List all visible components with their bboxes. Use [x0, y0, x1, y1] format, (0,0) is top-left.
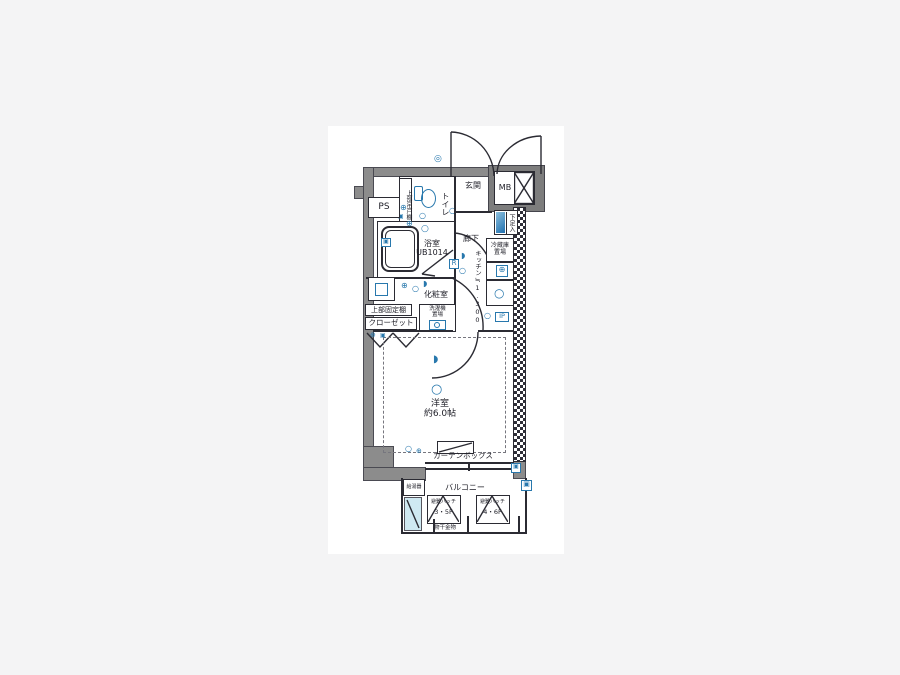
room-ceiling-dashed-outline: [383, 337, 506, 453]
downlight-icon: ◗: [461, 252, 465, 260]
ceiling-light-icon: ○: [412, 285, 419, 293]
ceiling-light-icon: ○: [419, 212, 426, 220]
balcony-label: バルコニー: [441, 483, 489, 492]
powder-room-label: 化粧室: [418, 290, 454, 299]
hatch-front-name: 避難ハッチ: [428, 500, 459, 506]
main-room-label: 洋室 約6.0帖: [405, 399, 475, 420]
sensor-light-icon: ◎: [434, 155, 442, 164]
entrance-door-arc-icon: [448, 131, 495, 177]
water-heater-label: 給湯器: [404, 485, 424, 491]
pipe-space-label: PS: [369, 202, 399, 212]
vent-icon: ▣: [380, 333, 386, 339]
kitchen-counter-lower: ○: [486, 280, 514, 306]
fridge-space-label: 冷蔵庫 置場: [487, 243, 513, 257]
kitchen-stove-icon: ⊕: [496, 265, 508, 277]
closet-label: クローゼット: [366, 319, 416, 328]
room-top-line-right: [478, 330, 514, 332]
partition-diagonal-icon: [405, 498, 421, 530]
meter-door-arc-icon: [496, 135, 543, 175]
ceiling-light-icon: ○: [484, 312, 491, 320]
outlet-icon: ⊕: [416, 448, 422, 455]
downlight-icon: ◗: [433, 355, 438, 365]
water-heater: 給湯器: [403, 479, 425, 496]
meter-box: MB: [494, 171, 535, 205]
shoe-cabinet-label: 下足入: [506, 212, 514, 234]
ip-box-icon: IP: [495, 312, 509, 322]
kitchen-sink-icon: ○: [494, 287, 504, 299]
entrance-label: 玄関: [457, 181, 489, 190]
bath-vent-icon: ▣: [381, 238, 391, 247]
wall-hatched-right: [513, 207, 526, 462]
washing-machine-icon: [429, 320, 446, 330]
ceiling-light-icon: ○: [431, 383, 442, 396]
washbasin-icon: [368, 277, 395, 301]
shoe-cabinet-icon: [496, 212, 505, 233]
pipe-space-box: PS: [368, 197, 400, 218]
washer-space: 洗濯機 置場: [419, 304, 456, 332]
toilet-label: トイレ: [441, 183, 449, 225]
washing-machine-drum-icon: [434, 322, 440, 328]
outlet-icon: ⊕: [401, 282, 408, 290]
ceiling-light-icon: ○: [459, 267, 466, 275]
balcony-partition-icon: [404, 497, 422, 531]
closet: クローゼット: [365, 317, 417, 330]
r-box-icon: R: [449, 259, 459, 269]
evacuation-hatch-rear: 避難ハッチ 4・6F: [476, 495, 510, 524]
shoe-cabinet: 下足入: [494, 210, 518, 235]
floorplan-image: MB 上部吊戸棚 トイレ ⊕ ▣ ○ 玄関 ◎ ○ PS ▣ 浴室 UB1014…: [0, 0, 900, 675]
ceiling-light-icon: ○: [405, 445, 412, 453]
wall-left-notch: [354, 186, 364, 199]
hatch-rear-floors: 4・6F: [477, 509, 508, 516]
closet-upper-shelf-label: 上部固定棚: [366, 306, 411, 314]
meter-box-x-icon: [514, 172, 534, 204]
closet-upper-shelf: 上部固定棚: [365, 304, 412, 316]
outlet-icon: ⊕: [406, 220, 413, 228]
balcony-tick: [467, 516, 469, 533]
balcony-tick: [518, 516, 520, 533]
downlight-icon: ◗: [423, 280, 427, 288]
kitchen-label: キッチン≒1.300: [474, 247, 481, 327]
outlet-icon: ⊕: [370, 332, 376, 339]
hatch-front-floors: 3・5F: [428, 509, 459, 516]
balcony-tick: [433, 519, 435, 533]
washbasin-bowl-icon: [375, 283, 388, 296]
curtain-box-label: カーテンボックス: [428, 452, 498, 461]
ceiling-light-icon: ○: [421, 225, 429, 234]
meter-box-label: MB: [496, 183, 514, 192]
toilet-bowl-icon: [421, 189, 436, 208]
washer-space-label: 洗濯機 置場: [420, 306, 455, 319]
outlet-icon: ⊕: [400, 204, 407, 212]
entrance-step-line: [456, 211, 492, 213]
window-shutter-icon: ▣: [511, 463, 521, 473]
balcony-light-icon: ▣: [521, 480, 532, 491]
hatch-rear-name: 避難ハッチ: [477, 500, 508, 506]
fridge-space: 冷蔵庫 置場: [486, 238, 514, 262]
kitchen-counter-upper: ⊕: [486, 262, 514, 280]
window-center-tick: [468, 462, 470, 471]
